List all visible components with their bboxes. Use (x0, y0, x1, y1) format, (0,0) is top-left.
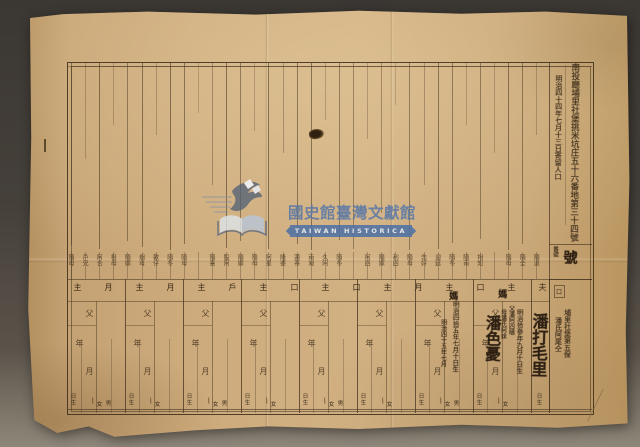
column-line (473, 279, 474, 413)
column-line (325, 63, 326, 120)
relationship-label: 隨全 (518, 254, 524, 266)
male-label: 男 (104, 400, 110, 407)
column-line (198, 63, 199, 113)
row-line (67, 279, 592, 280)
handwritten-date-note: 明治四拾五年七月十日生 (451, 301, 459, 373)
female-label: 女 (95, 401, 101, 408)
relationship-label: 阿四 (363, 254, 369, 266)
column-line (184, 63, 185, 244)
year-label: 年 (133, 339, 141, 348)
day-born-label: 日生 (69, 393, 75, 406)
relationship-label: 隨退 (532, 254, 538, 266)
day-born-label: 日生 (417, 393, 423, 406)
day-born-label: 日生 (535, 393, 541, 406)
row-line (125, 325, 154, 326)
column-line (371, 339, 372, 413)
relationship-label: 相知 (476, 254, 482, 266)
handwritten-kin-mark: 媽 (495, 289, 506, 298)
month-label: 月 (433, 367, 441, 376)
relationship-label: 念好 (420, 254, 426, 266)
row-line (299, 325, 328, 326)
row-marker: 主 (321, 283, 329, 292)
column-line (183, 279, 184, 413)
column-line (127, 63, 128, 241)
row-marker: 口 (352, 283, 360, 292)
column-line (386, 301, 387, 413)
column-line (156, 63, 157, 135)
month-label: 月 (143, 367, 151, 376)
relationship-label: 戶兄 (81, 254, 87, 266)
male-label: 男 (220, 400, 226, 407)
column-line (328, 301, 329, 413)
column-line (67, 279, 68, 413)
column-line (113, 63, 114, 125)
column-line (401, 339, 402, 413)
relationship-label: 隨嫁 (236, 254, 242, 266)
relationship-label: 隨冬 (335, 254, 341, 266)
male-label: 男 (452, 400, 458, 407)
month-label: 月 (491, 367, 499, 376)
row-marker: 主 (73, 283, 81, 292)
column-line (452, 63, 453, 243)
column-line (154, 301, 155, 413)
row-line (67, 301, 549, 302)
father-label: 父 (259, 309, 267, 318)
day-born-label: 日生 (301, 393, 307, 406)
column-line (96, 301, 97, 413)
father-label: 父 (201, 309, 209, 318)
father-label: 父 (143, 309, 151, 318)
handwritten-head-birth: 明治拾參年九月十日生 (515, 309, 523, 374)
column-line (367, 63, 368, 139)
column-line (313, 339, 314, 413)
column-line (142, 63, 143, 247)
handwritten-second-name: 潘色憂 (481, 315, 502, 362)
handwritten-right-note-2: 潘氏阿尾仝 (554, 317, 562, 352)
female-label: 女 (443, 401, 449, 408)
handwritten-header-address: 南投廳埔里社堡挑米坑庄五十六番地第三十四號 (568, 63, 579, 242)
column-line (227, 339, 228, 413)
handwritten-date-note-2: 明治四十五年七月 (439, 319, 446, 367)
relationship-label: 隨南 (462, 254, 468, 266)
column-line (415, 279, 416, 413)
female-label: 女 (269, 401, 275, 408)
row-marker: 口 (290, 283, 298, 292)
row-line (241, 325, 270, 326)
watermark-title: 國史館臺灣文獻館 (288, 201, 416, 223)
father-label: 父 (433, 309, 441, 318)
relationship-label: 隨冬 (166, 254, 172, 266)
column-line (494, 63, 495, 153)
column-line (139, 339, 140, 413)
handwritten-right-note-1: 埔里社堡第五保 (563, 309, 571, 358)
row-marker: 主 (135, 283, 143, 292)
row-line (183, 325, 212, 326)
column-line (424, 63, 425, 185)
column-line (255, 339, 256, 413)
female-label: 女 (501, 401, 507, 408)
row-line (357, 325, 386, 326)
column-line (81, 339, 82, 413)
column-line (212, 63, 213, 185)
relationship-label: 隨喜 (208, 254, 214, 266)
margin-ink-mark (44, 139, 46, 152)
column-line (466, 63, 467, 125)
column-line (270, 301, 271, 413)
female-label: 女 (385, 401, 391, 408)
column-line (254, 63, 255, 131)
year-label: 年 (423, 339, 431, 348)
column-line (522, 63, 523, 244)
row-marker: 月 (166, 283, 174, 292)
handwritten-head-name: 潘打毛里 (527, 313, 549, 378)
column-line (343, 339, 344, 413)
year-label: 年 (191, 339, 199, 348)
row-line (67, 325, 96, 326)
female-label: 女 (153, 401, 159, 408)
female-label: 女 (327, 401, 333, 408)
column-line (169, 339, 170, 413)
column-line (125, 279, 126, 413)
day-born-label: 日生 (475, 393, 481, 406)
watermark-subtitle: TAIWAN HISTORICA (295, 227, 407, 235)
column-line (536, 63, 537, 135)
month-label: 月 (259, 367, 267, 376)
father-label: 父 (375, 309, 383, 318)
column-line (71, 63, 72, 245)
column-line (285, 339, 286, 413)
row-marker: 戶 (228, 283, 236, 292)
column-line (357, 279, 358, 413)
column-line (85, 63, 86, 159)
relationship-label: 隨母 (504, 254, 510, 266)
relationship-label: 利四 (391, 254, 397, 266)
year-label: 年 (365, 339, 373, 348)
relationship-label: 迎延 (434, 254, 440, 266)
row-marker: 主 (507, 283, 515, 292)
month-label: 月 (375, 367, 383, 376)
watermark-logo (200, 177, 290, 243)
row-marker: 主 (259, 283, 267, 292)
motion-lines-icon (202, 197, 232, 212)
day-born-label: 日生 (185, 393, 191, 406)
column-line (198, 252, 199, 279)
relationship-label: 久阿 (321, 254, 327, 266)
relationship-label: 隨嫁 (377, 254, 383, 266)
row-line (67, 66, 592, 67)
watermark-banner: TAIWAN HISTORICA (290, 225, 412, 237)
handwritten-father-note: 父潘阿四嗹 (507, 305, 514, 335)
year-label: 年 (75, 339, 83, 348)
column-line (353, 252, 354, 279)
relationship-label: 隨母 (180, 254, 186, 266)
small-seal-box: 口 (554, 285, 565, 298)
column-line (459, 339, 460, 413)
column-line (99, 63, 100, 249)
relationship-label: 隨母 (250, 254, 256, 266)
column-line (494, 252, 495, 279)
father-label: 父 (85, 309, 93, 318)
relationship-label: 股阿 (222, 254, 228, 266)
column-line (565, 65, 566, 225)
male-label: 男 (336, 400, 342, 407)
month-label: 月 (317, 367, 325, 376)
column-line (480, 63, 481, 239)
relationship-label: 烟母 (138, 254, 144, 266)
paper: 隨母戶兄阿合祖母隨嫁烟母歡仔隨冬隨母隨喜股阿隨嫁隨母阿星隆婆蓮茶南昶久阿隨冬阿四… (27, 9, 630, 438)
column-line (212, 301, 213, 413)
relationship-label: 隨嫁 (123, 254, 129, 266)
row-marker: 主 (383, 283, 391, 292)
row-marker: 口 (476, 283, 484, 292)
small-box-mark: 口 (556, 287, 562, 296)
column-line (170, 63, 171, 250)
column-line (438, 63, 439, 249)
row-marker: 月 (104, 283, 112, 292)
relationship-label: 阿星 (264, 254, 270, 266)
relationship-label: 隨母 (67, 254, 73, 266)
month-label: 月 (201, 367, 209, 376)
row-marker: 夫 (538, 283, 546, 292)
relationship-label: 隨冬 (448, 254, 454, 266)
number-box (549, 244, 592, 280)
month-label: 月 (85, 367, 93, 376)
column-line (283, 63, 284, 153)
day-born-label: 日生 (127, 393, 133, 406)
row-line (67, 409, 592, 410)
year-label: 年 (307, 339, 315, 348)
relationship-label: 南昶 (307, 254, 313, 266)
row-marker: 主 (197, 283, 205, 292)
column-line (197, 339, 198, 413)
column-line (299, 279, 300, 413)
day-born-label: 日生 (359, 393, 365, 406)
handwritten-header-date: 明治四十四年七月十三日寄留人口 (554, 75, 562, 180)
photo-backdrop: 隨母戶兄阿合祖母隨嫁烟母歡仔隨冬隨母隨喜股阿隨嫁隨母阿星隆婆蓮茶南昶久阿隨冬阿四… (0, 0, 640, 447)
relationship-label: 祖母 (109, 254, 115, 266)
relationship-label: 隨母 (405, 254, 411, 266)
archive-watermark: 國史館臺灣文獻館 TAIWAN HISTORICA (200, 177, 430, 243)
day-born-label: 日生 (243, 393, 249, 406)
column-line (241, 279, 242, 413)
female-label: 女 (211, 401, 217, 408)
father-label: 父 (317, 309, 325, 318)
handwritten-kin-mark: 媽 (446, 291, 457, 300)
column-line (429, 339, 430, 413)
year-label: 年 (249, 339, 257, 348)
relationship-label: 蓮茶 (293, 254, 299, 266)
column-line (111, 339, 112, 413)
relationship-label: 歡仔 (152, 254, 158, 266)
row-marker: 月 (414, 283, 422, 292)
column-line (395, 63, 396, 105)
relationship-label: 阿合 (95, 254, 101, 266)
column-line (508, 63, 509, 250)
relationship-label: 隆婆 (279, 254, 285, 266)
column-line (549, 63, 550, 413)
